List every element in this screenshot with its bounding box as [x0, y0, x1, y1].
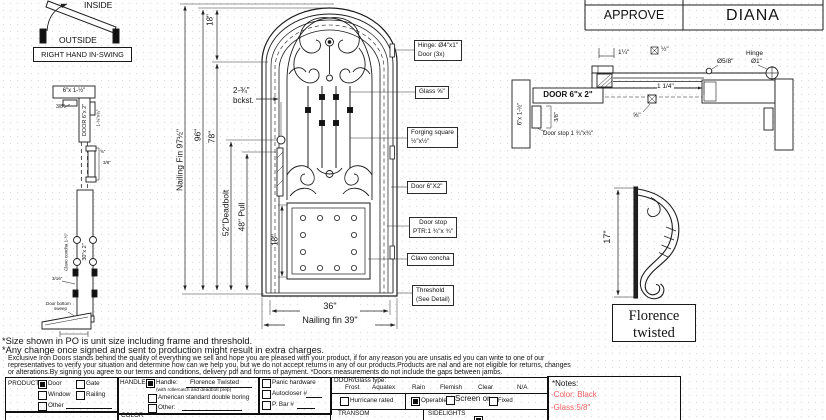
glass-type-aquatex[interactable]: Aquatex [372, 385, 395, 392]
transom-sidelights-divider [423, 409, 424, 420]
approver-name: DIANA [683, 7, 823, 25]
head-hinge-label-1: Hinge [746, 50, 763, 57]
dim-nailing-fin-height: Nailing Fin 97½" [175, 129, 184, 191]
head-dim-top: 1¼" [618, 49, 629, 56]
callout-doorstop-line2: PTR:1 ¾"x ¾" [413, 228, 453, 237]
glass-cell-divider-1 [330, 393, 547, 394]
door-bottom-sweep-label-2: sweep [54, 307, 67, 312]
dim-backset-2: bckst. [233, 97, 254, 106]
jamb-header-dim: 6"x 1-½" [53, 88, 95, 95]
product-railing-checkbox[interactable] [76, 391, 85, 400]
jamb-gap-dim: 3/16" [52, 277, 62, 282]
swing-inside-label: INSIDE [84, 1, 112, 10]
autocloser-checkbox[interactable] [262, 390, 271, 399]
handle-value: Florence Twisted [190, 379, 239, 386]
jamb-door-dim: DOOR 6"x 2" [81, 104, 87, 136]
callout-hinge: Hinge: Ø4"x1" Door (3x) [414, 40, 462, 61]
dim-deadbolt: 52"Deadbolt [221, 190, 230, 237]
callout-glass: Glass ⅝" [415, 86, 449, 99]
notes-color-line: -Color: Black [551, 391, 597, 400]
callout-threshold: Threshold (See Detail) [412, 285, 454, 306]
product-gate-label: Gate [86, 381, 100, 388]
screen-checkbox[interactable] [446, 396, 455, 405]
head-pin-dim: Ø5/8" [717, 58, 733, 65]
color-row-left-border [117, 413, 118, 420]
dim-nailing-fin-width: Nailing fin 39" [285, 316, 375, 326]
handle-label: HANDLE [120, 380, 146, 387]
approve-label: APPROVE [585, 9, 683, 23]
glass-cell-divider-2 [405, 393, 406, 409]
callout-forging: Forging square ½"x½" [407, 127, 458, 148]
callout-clavo: Clavo concha [407, 253, 454, 266]
swing-outside-label: OUTSIDE [59, 36, 97, 45]
head-glass-thickness: ⅝" [633, 112, 641, 119]
glass-type-rain[interactable]: Rain [412, 385, 425, 392]
dim-panel-height: 18" [272, 234, 281, 246]
dim-pull: 48" Pull [237, 202, 246, 231]
handle-other-label: Other: [158, 405, 176, 412]
callout-hinge-line1: Hinge: Ø4"x1" [418, 42, 458, 51]
jamb-stile-dim: 30"x 2" [82, 243, 88, 260]
product-gate-checkbox[interactable] [76, 380, 85, 389]
screen-label: Screen or [455, 395, 490, 404]
callout-threshold-line1: Threshold [416, 287, 450, 296]
product-other-label: Other [48, 403, 64, 410]
product-door-label: Door [48, 381, 62, 388]
head-dim-right: 1 1/4" [657, 83, 674, 90]
handle-height-dim: 17" [603, 230, 613, 243]
dim-frame-height: 96" [193, 129, 202, 141]
product-window-checkbox[interactable] [38, 391, 47, 400]
color-row-top-border [117, 413, 330, 414]
sidelights-label: SIDELIGHTS [428, 411, 465, 418]
product-railing-label: Railing [86, 392, 105, 399]
product-other-checkbox[interactable] [38, 402, 47, 411]
operable-label: Operable [421, 398, 447, 405]
glass-type-clear[interactable]: Clear [478, 385, 493, 392]
glass-type-flemish[interactable]: Flemish [440, 385, 462, 392]
product-other-line[interactable] [66, 408, 112, 409]
pbar-checkbox[interactable] [262, 401, 271, 410]
fixed-checkbox[interactable] [489, 397, 498, 406]
pbar-line[interactable] [297, 408, 315, 409]
notes-glass-line: -Glass:5/8" [551, 404, 590, 413]
callout-doorstop-line1: Door stop [413, 219, 453, 228]
operable-checkbox[interactable] [411, 397, 420, 406]
handle-main-label: Handle: [156, 380, 178, 387]
handle-name-box: Florence twisted [612, 304, 696, 342]
swing-type-label: RIGHT HAND IN-SWING [33, 47, 132, 62]
jamb-offset-dim: 3/8" [56, 105, 65, 111]
head-hinge-label-2: Ø1" [751, 58, 762, 65]
product-door-checkbox[interactable] [38, 380, 47, 389]
head-doorstop-label: Door stop 1 ¾"x¾" [543, 131, 593, 138]
glass-type-frost[interactable]: Frost [345, 385, 359, 392]
panic-label: Panic hardware [272, 380, 316, 387]
handle-sub-label: (with rollercatch and deadbolt prep) [156, 388, 231, 393]
notes-title: *Notes: [552, 380, 578, 389]
hurricane-label: Hurricane rated [350, 398, 393, 405]
callout-door: Door 6"X2" [407, 181, 447, 194]
hurricane-checkbox[interactable] [340, 397, 349, 406]
pbar-label: P. Bar # [272, 402, 294, 409]
dim-backset-1: 2-¾" [233, 87, 250, 96]
handle-other-line[interactable] [182, 410, 242, 411]
callout-hinge-line2: Door (3x) [418, 51, 458, 60]
sidelights-checkbox[interactable] [474, 416, 483, 420]
dim-door-width: 36" [300, 302, 360, 312]
handle-other-checkbox[interactable] [148, 404, 157, 413]
head-offset-dim: 3/8" [554, 112, 560, 122]
panic-checkbox[interactable] [262, 379, 271, 388]
handle-name-line2: twisted [613, 325, 695, 342]
autocloser-line[interactable] [306, 397, 322, 398]
product-window-label: Window [48, 392, 70, 399]
head-door-label: DOOR 6"x 2" [533, 91, 603, 100]
jamb-stop-dim: 1-¾"x¾" [97, 110, 102, 127]
drawing-sheet: INSIDE OUTSIDE RIGHT HAND IN-SWING 6"x 1… [0, 0, 826, 420]
autocloser-label: Autocloser # [272, 391, 307, 398]
product-cell-2 [5, 412, 119, 420]
dim-arch-height: 18" [207, 14, 216, 26]
head-jamb-dim: 6"x 1-½" [518, 103, 525, 126]
callout-forging-line1: Forging square [411, 129, 454, 138]
callout-threshold-line2: (See Detail) [416, 296, 450, 305]
jamb-clavo-label: Clavo concha 1-½" [65, 233, 70, 271]
callout-forging-line2: ½"x½" [411, 138, 454, 147]
callout-doorstop: Door stop PTR:1 ¾"x ¾" [409, 217, 457, 238]
head-glass-square-dim: ½" [661, 46, 669, 53]
handle-boring-checkbox[interactable] [148, 394, 157, 403]
disclaimer-line5: or alterations.By signing you agree to o… [8, 369, 502, 377]
disclaimer-line2: *Any change once signed and sent to prod… [2, 345, 324, 355]
dim-jamb-height: 78" [207, 131, 216, 143]
transom-label: TRANSOM [338, 411, 370, 418]
handle-boring-label: American standard double boring [158, 395, 249, 402]
product-label: PRODUCT: [8, 381, 40, 388]
fixed-label: Fixed [498, 398, 513, 405]
handle-name-line1: Florence [613, 308, 695, 325]
jamb-lock-dim-a: ⅝" [100, 150, 105, 155]
jamb-section-lines [42, 86, 99, 337]
jamb-lock-dim-b: 3/8" [103, 161, 111, 166]
handle-detail-lines [614, 187, 679, 299]
handle-main-checkbox[interactable] [146, 379, 155, 388]
color-label: COLOR [121, 413, 143, 420]
glass-type-na[interactable]: N/A [517, 385, 528, 392]
color-row-right-border [330, 413, 331, 420]
